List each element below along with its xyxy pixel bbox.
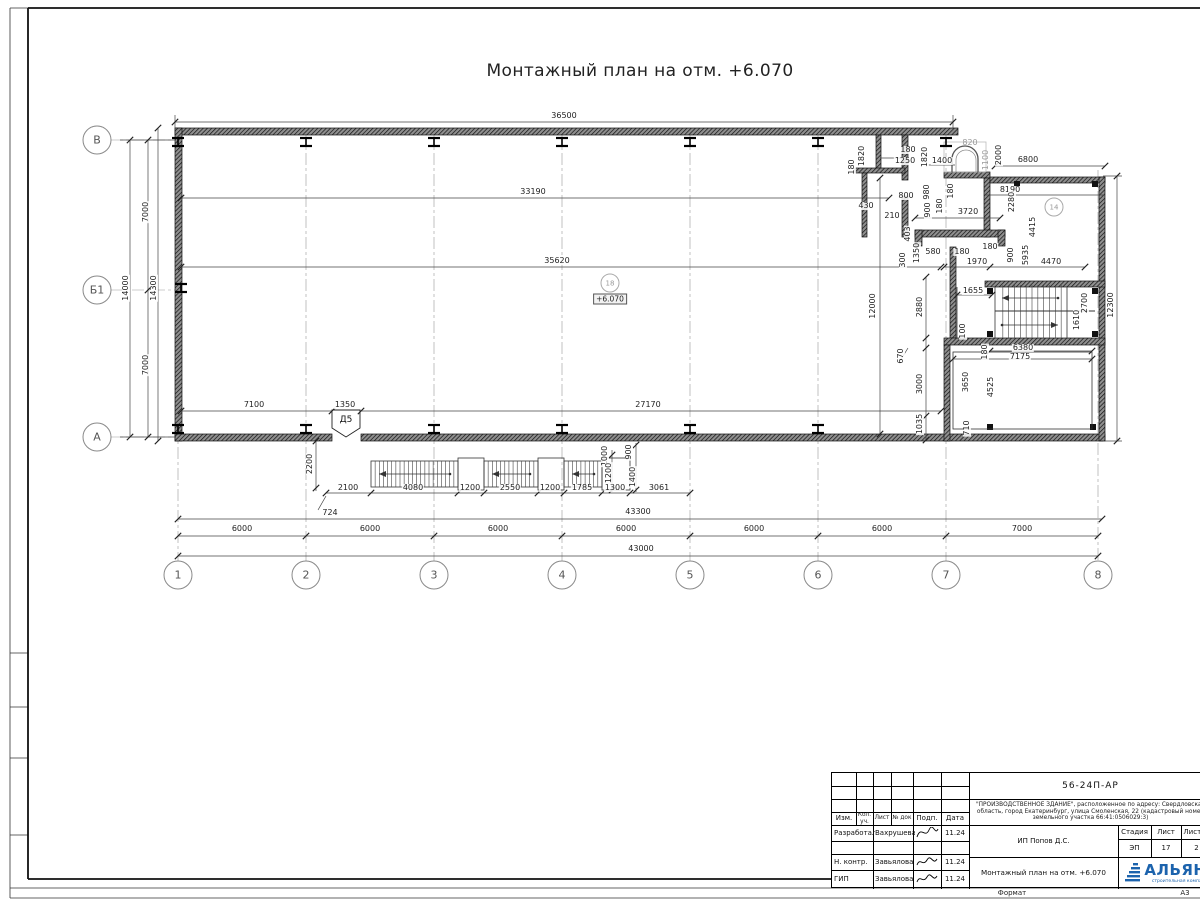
room-tag-18: 18 [601,274,620,293]
tb-col-koluch: Кол. уч. [856,812,873,825]
dim-label: 100 [959,322,967,339]
walls [175,128,1105,441]
tb-date-ncontrol: 11.24 [941,854,969,870]
dim-label: 210 [883,212,900,220]
dim-label: 36500 [550,112,577,120]
tb-stage-value: ЭП [1118,839,1151,857]
room-tag-14: 14 [1045,198,1064,217]
dim-label: 1035 [916,413,924,435]
tb-col-list: Лист [873,812,891,825]
dim-label: 6800 [1017,156,1039,164]
tb-signature-developer [913,825,941,841]
tb-date-gip: 11.24 [941,870,969,889]
dim-label: 800 [897,192,914,200]
dim-label: 1350 [913,242,921,264]
grid-bubble-col-3: 3 [420,561,449,590]
tb-col-data: Дата [941,812,969,825]
dim-label: 2000 [995,144,1003,166]
dim-label: 4080 [402,484,424,492]
tb-sheet-label: Лист [1151,825,1181,839]
dim-label: 7175 [1009,353,1031,361]
grid-bubble-col-6: 6 [804,561,833,590]
door-marker-label: Д5 [340,415,353,425]
dim-label: 35620 [543,257,570,265]
dim-label: 1820 [921,146,929,168]
dim-label: 4525 [987,376,995,398]
grid-bubble-col-8: 8 [1084,561,1113,590]
dim-label: 403 [904,225,912,242]
dim-label: 14000 [122,274,130,301]
dim-label: 180 [953,248,970,256]
tb-logo: АЛЬЯНС строительная компания [1118,857,1200,889]
dim-label: 1820 [858,145,866,167]
dim-label: 3650 [962,371,970,393]
dim-label: 900 [1007,246,1015,263]
dim-label: 1400 [629,466,637,488]
dim-label: 7000 [1011,525,1033,533]
logo-subtitle: строительная компания [1144,879,1200,884]
dim-label: 820 [961,139,978,147]
tb-sheets-value: 2 [1181,839,1200,857]
dim-label: 724 [321,509,338,517]
dim-label: 43000 [627,545,654,553]
tb-role-developer: Разработал [832,825,875,841]
dim-label: 670 [897,347,905,364]
dim-label: 300 [899,251,907,268]
dim-label: 2100 [337,484,359,492]
dim-label: 2200 [306,453,314,475]
dim-label: 430 [857,202,874,210]
grid-bubble-row-А: А [83,423,112,452]
dim-label: 6000 [231,525,253,533]
tb-date-developer: 11.24 [941,825,969,841]
alliance-logo-icon [1124,861,1140,885]
format-label: Формат [998,889,1026,897]
dim-label: 4470 [1040,258,1062,266]
grid-bubble-row-В: В [83,126,112,155]
dim-label: 1100 [982,149,990,171]
tb-sheet-value: 17 [1151,839,1181,857]
dim-label: 6000 [871,525,893,533]
dim-label: 980 [923,183,931,200]
dim-label: 14300 [150,274,158,301]
dim-label: 900 [924,201,932,218]
tb-name-developer: Вахрушева [873,825,915,841]
dim-label: 180 [981,343,989,360]
dim-label: 3061 [648,484,670,492]
grid-bubble-col-4: 4 [548,561,577,590]
tb-sheets-label: Листов [1181,825,1200,839]
dim-label: 580 [924,248,941,256]
format-value: А3 [1180,889,1189,897]
tb-signature-gip [913,870,941,889]
tb-doc-code: 56-24П-АР [969,773,1200,799]
dim-label: 12000 [869,292,877,319]
dim-label: 1250 [894,157,916,165]
dim-label: 6000 [487,525,509,533]
grid-bubble-col-1: 1 [164,561,193,590]
grid-bubble-col-2: 2 [292,561,321,590]
tb-col-izm: Изм. [832,812,856,825]
dim-label: 1300 [604,484,626,492]
sheet-inner-frame [28,8,1200,879]
dim-label: 180 [947,182,955,199]
dim-label: 3000 [916,373,924,395]
dim-label: 2550 [499,484,521,492]
dim-label: 7100 [243,401,265,409]
dim-label: 6380 [1012,344,1034,352]
dim-label: 1970 [966,258,988,266]
tb-name-gip: Завьялова [873,870,915,889]
dim-label: 900 [625,443,633,460]
dim-label: 1785 [571,484,593,492]
tb-role-gip: ГИП [832,870,875,889]
dim-label: 27170 [634,401,661,409]
dim-label: 710 [963,419,971,436]
dim-label: 180 [848,158,856,175]
dim-label: 1200 [539,484,561,492]
dim-label: 12300 [1107,291,1115,318]
grid-bubble-col-7: 7 [932,561,961,590]
dim-label: 6000 [743,525,765,533]
dim-label: 1400 [931,157,953,165]
level-mark: +6.070 [593,294,627,305]
dim-label: 2700 [1081,292,1089,314]
dim-label: 180 [936,197,944,214]
dim-label: 1200 [459,484,481,492]
dim-label: 1655 [962,287,984,295]
tb-stage-label: Стадия [1118,825,1151,839]
dim-label: 6000 [359,525,381,533]
dim-label: 2280 [1008,191,1016,213]
tb-client: ИП Попов Д.С. [969,825,1118,857]
tb-name-ncontrol: Завьялова [873,854,915,870]
tb-col-podp: Подп. [913,812,941,825]
dim-label: 1610 [1073,309,1081,331]
dim-label: 7000 [142,201,150,223]
dim-label: 4415 [1029,216,1037,238]
drawing-sheet: Монтажный план на отм. +6.070 +6.070 Д5 … [0,0,1200,900]
dim-label: 2880 [916,296,924,318]
grid-bubble-col-5: 5 [676,561,705,590]
grid-bubble-row-Б1: Б1 [83,276,112,305]
dim-label: 7000 [142,354,150,376]
tb-signature-ncontrol [913,854,941,870]
dim-label: 180 [981,243,998,251]
dim-label: 33190 [519,188,546,196]
title-block: Изм. Кол. уч. Лист № док Подп. Дата Разр… [831,772,1200,888]
dim-label: 43300 [624,508,651,516]
logo-text: АЛЬЯНС [1144,862,1200,879]
dim-label: 1200 [605,462,613,484]
dim-label: 180 [899,146,916,154]
tb-project-description: "ПРОИЗВОДСТВЕННОЕ ЗДАНИЕ", расположенное… [972,799,1200,825]
tb-drawing-title: Монтажный план на отм. +6.070 [969,857,1118,889]
drawing-title-text: Монтажный план на отм. +6.070 [486,61,793,81]
dim-label: 1350 [334,401,356,409]
dim-label: 3720 [957,208,979,216]
dim-label: 5935 [1022,244,1030,266]
dim-label: 6000 [615,525,637,533]
tb-role-ncontrol: Н. контр. [832,854,875,870]
tb-col-ndok: № док [891,812,913,825]
